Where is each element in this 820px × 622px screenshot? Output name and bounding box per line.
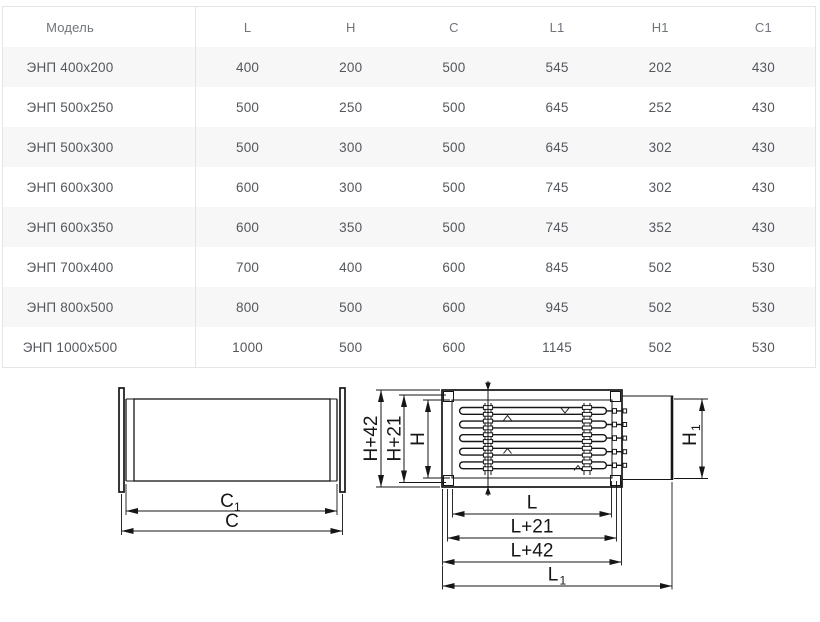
col-header-h1: H1 [609,7,712,47]
cell-value: 1145 [505,327,608,367]
cell-value: 700 [196,247,299,287]
cell-value: 645 [505,127,608,167]
cell-model: ЭНП 500x300 [3,127,196,167]
left-flange [119,388,124,492]
cell-value: 500 [196,87,299,127]
cell-value: 945 [505,287,608,327]
cell-model: ЭНП 600x350 [3,207,196,247]
cell-value: 502 [609,327,712,367]
cell-model: ЭНП 1000x500 [3,327,196,367]
dim-label-h21: H+21 [385,416,406,462]
table-header-row: Модель L H C L1 H1 C1 [3,7,815,47]
cell-value: 600 [402,287,505,327]
cell-value: 502 [609,287,712,327]
cell-value: 430 [712,207,815,247]
cell-model: ЭНП 400x200 [3,47,196,87]
cell-model: ЭНП 600x300 [3,167,196,207]
cell-model: ЭНП 800x500 [3,287,196,327]
table-row: ЭНП 800x500 800 500 600 945 502 530 [3,287,815,327]
cell-value: 250 [299,87,402,127]
table-row: ЭНП 400x200 400 200 500 545 202 430 [3,47,815,87]
cell-value: 745 [505,167,608,207]
dimension-h1: H 1 [674,399,708,479]
dim-label-l: L [527,493,538,514]
duct-connection [622,396,672,481]
dim-label-h: H [408,432,429,446]
cell-value: 252 [609,87,712,127]
cell-value: 600 [196,207,299,247]
col-header-c: C [402,7,505,47]
table-row: ЭНП 500x250 500 250 500 645 252 430 [3,87,815,127]
cell-value: 500 [402,167,505,207]
duct-side-view-diagram: C 1 C [95,380,350,542]
cell-value: 302 [609,167,712,207]
cell-value: 745 [505,207,608,247]
heater-front-view-diagram: H+42 H+21 H H 1 L L+21 [360,378,720,603]
cell-value: 500 [299,327,402,367]
cell-value: 430 [712,167,815,207]
duct-body [119,388,345,492]
col-header-model: Модель [3,7,196,47]
cell-value: 202 [609,47,712,87]
cell-value: 430 [712,87,815,127]
cell-value: 530 [712,327,815,367]
cell-value: 302 [609,127,712,167]
col-header-l1: L1 [505,7,608,47]
col-header-c1: C1 [712,7,815,47]
table-row: ЭНП 600x300 600 300 500 745 302 430 [3,167,815,207]
cell-value: 400 [299,247,402,287]
cell-value: 600 [196,167,299,207]
table-row: ЭНП 700x400 700 400 600 845 502 530 [3,247,815,287]
cell-value: 500 [402,87,505,127]
table-row: ЭНП 600x350 600 350 500 745 352 430 [3,207,815,247]
cell-value: 352 [609,207,712,247]
cell-value: 300 [299,127,402,167]
right-flange [340,388,345,492]
col-header-l: L [196,7,299,47]
cell-model: ЭНП 500x250 [3,87,196,127]
table-row: ЭНП 1000x500 1000 500 600 1145 502 530 [3,327,815,367]
cell-value: 400 [196,47,299,87]
cell-value: 845 [505,247,608,287]
cell-value: 500 [402,47,505,87]
dimension-l1: L 1 [443,482,673,590]
col-header-h: H [299,7,402,47]
cell-value: 200 [299,47,402,87]
cell-value: 1000 [196,327,299,367]
table-row: ЭНП 500x300 500 300 500 645 302 430 [3,127,815,167]
dim-label-c1: C [220,491,234,512]
dim-label-l1-sub: 1 [560,574,567,588]
cell-value: 430 [712,47,815,87]
cell-value: 645 [505,87,608,127]
dim-label-h1: H [680,432,701,446]
cell-value: 430 [712,127,815,167]
cell-value: 502 [609,247,712,287]
dim-label-l1: L [548,565,559,586]
dim-label-h1-sub: 1 [689,424,703,431]
page: Модель L H C L1 H1 C1 ЭНП 400x200 400 20… [0,0,820,622]
heater-casing [442,390,622,487]
dim-label-l21: L+21 [511,517,554,538]
dim-label-h42: H+42 [361,416,382,462]
cell-value: 530 [712,287,815,327]
cell-value: 530 [712,247,815,287]
cell-value: 500 [402,207,505,247]
cell-value: 500 [299,287,402,327]
dim-label-c: C [225,511,239,532]
cell-value: 300 [299,167,402,207]
cell-value: 545 [505,47,608,87]
cell-value: 500 [402,127,505,167]
cell-model: ЭНП 700x400 [3,247,196,287]
cell-value: 600 [402,247,505,287]
cell-value: 800 [196,287,299,327]
dim-label-l42: L+42 [511,541,554,562]
cell-value: 500 [196,127,299,167]
dimensions-table: Модель L H C L1 H1 C1 ЭНП 400x200 400 20… [2,6,816,368]
cell-value: 350 [299,207,402,247]
cell-value: 600 [402,327,505,367]
